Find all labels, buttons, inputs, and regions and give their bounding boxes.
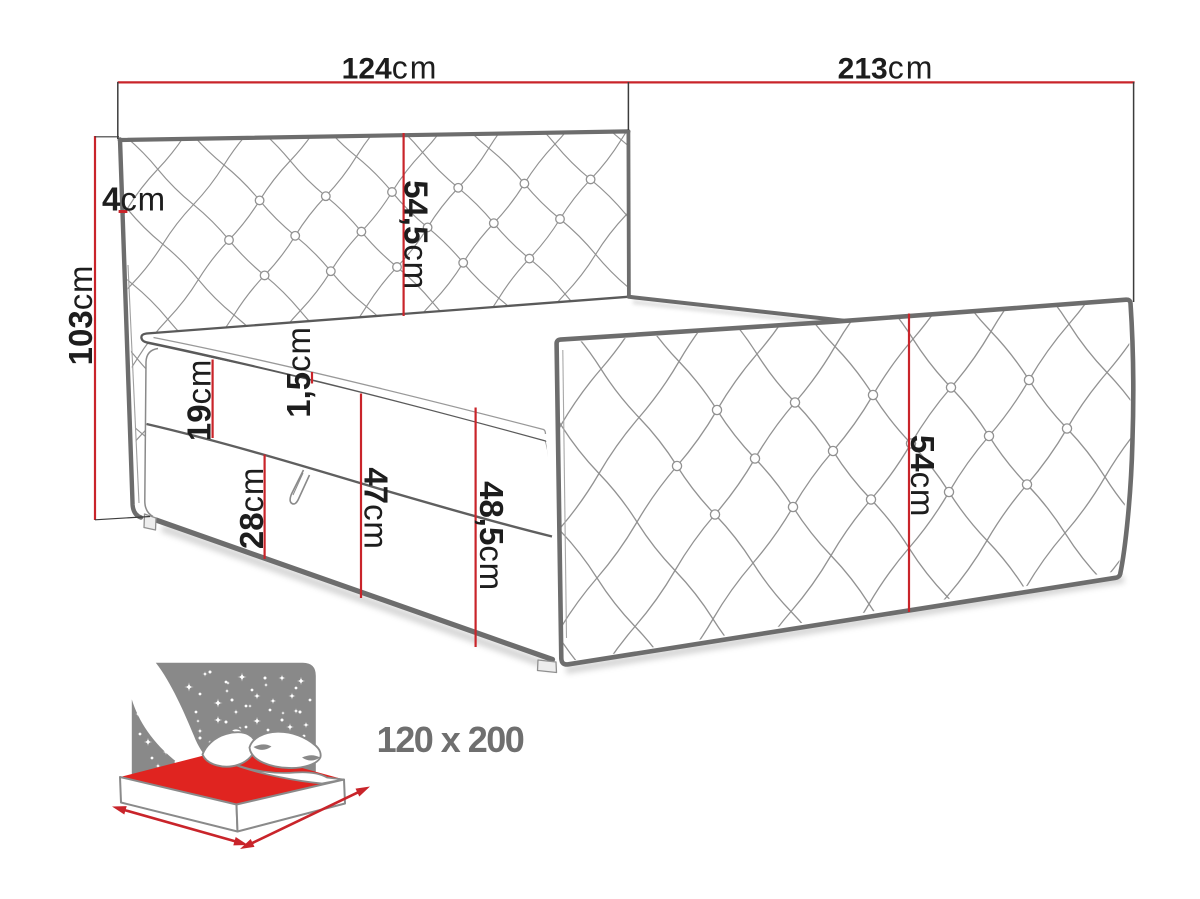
svg-text:103cm: 103cm: [62, 265, 99, 366]
svg-text:48,5cm: 48,5cm: [473, 481, 510, 591]
svg-text:213cm: 213cm: [838, 50, 935, 86]
svg-text:54cm: 54cm: [904, 435, 941, 517]
svg-text:4cm: 4cm: [102, 181, 166, 218]
svg-text:28cm: 28cm: [233, 467, 270, 549]
svg-text:124cm: 124cm: [342, 50, 439, 86]
svg-text:54,5cm: 54,5cm: [398, 180, 435, 290]
svg-text:120 x 200: 120 x 200: [377, 719, 524, 760]
svg-text:1,5cm: 1,5cm: [280, 326, 317, 417]
svg-text:47cm: 47cm: [358, 467, 395, 549]
svg-text:19cm: 19cm: [181, 359, 218, 441]
